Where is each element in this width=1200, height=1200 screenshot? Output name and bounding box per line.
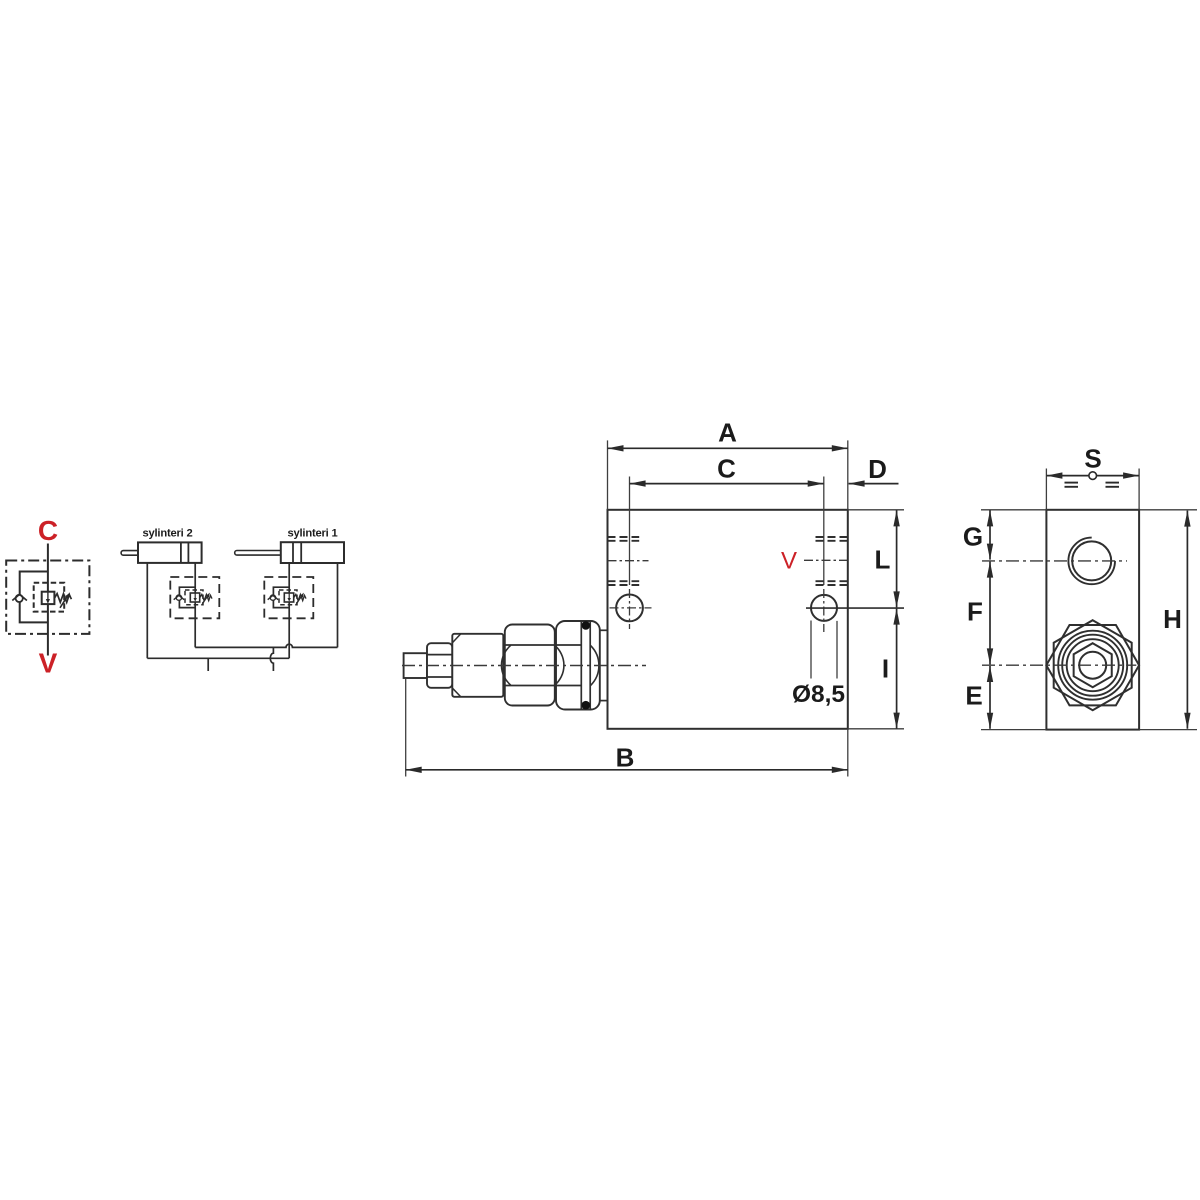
svg-text:Ø8,5: Ø8,5 [792,681,845,708]
svg-text:A: A [718,418,737,448]
svg-text:sylinteri 1: sylinteri 1 [287,528,337,540]
svg-text:G: G [963,522,983,552]
svg-text:S: S [1084,444,1101,474]
svg-text:B: B [616,743,635,773]
svg-text:D: D [868,454,887,484]
svg-text:C: C [38,515,58,546]
svg-text:V: V [39,648,58,679]
svg-text:F: F [967,597,983,627]
svg-text:sylinteri 2: sylinteri 2 [142,528,192,540]
svg-text:E: E [965,681,982,711]
svg-text:C: C [717,454,736,484]
svg-text:V: V [781,548,797,575]
svg-text:I: I [882,654,889,684]
svg-text:H: H [1163,604,1182,634]
svg-text:L: L [875,545,891,575]
